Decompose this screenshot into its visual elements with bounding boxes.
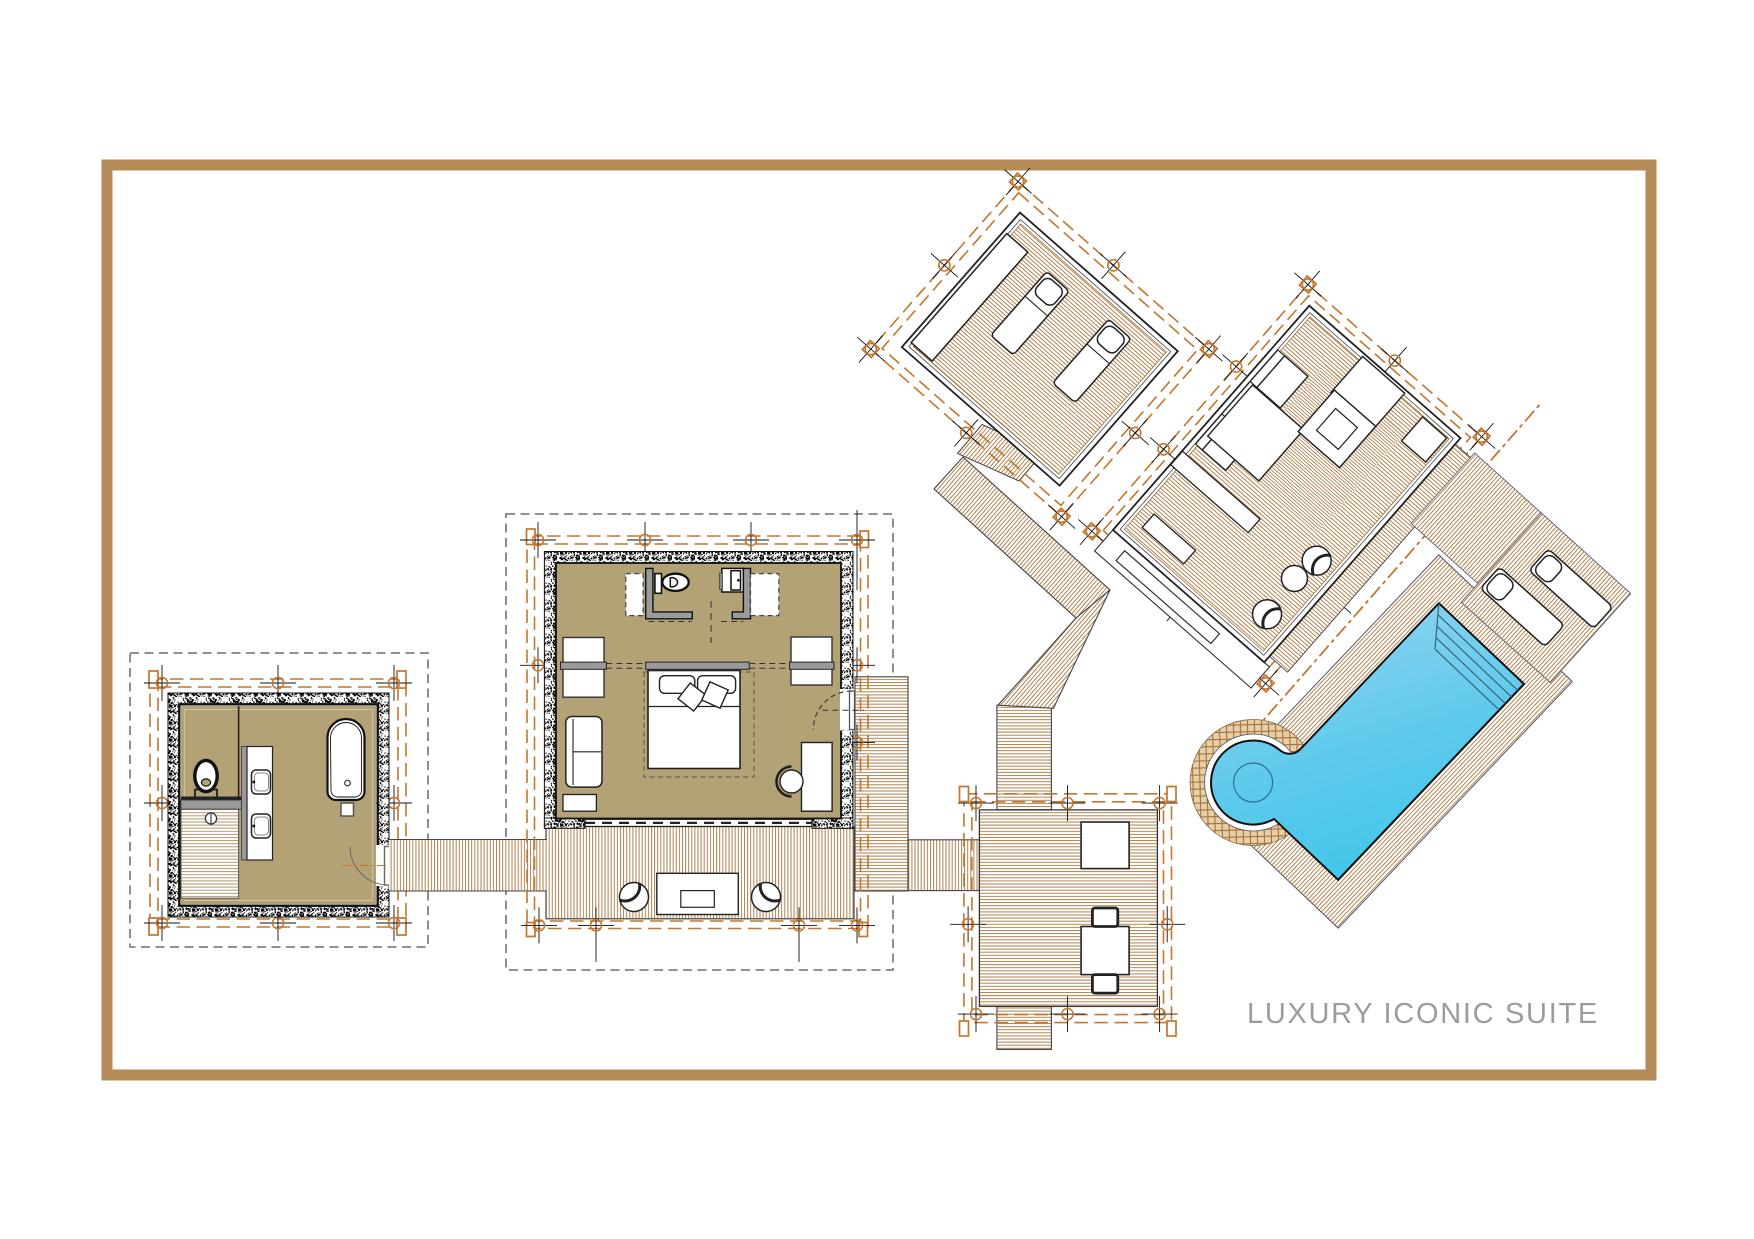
svg-text:LUXURY ICONIC SUITE: LUXURY ICONIC SUITE (1247, 998, 1599, 1030)
